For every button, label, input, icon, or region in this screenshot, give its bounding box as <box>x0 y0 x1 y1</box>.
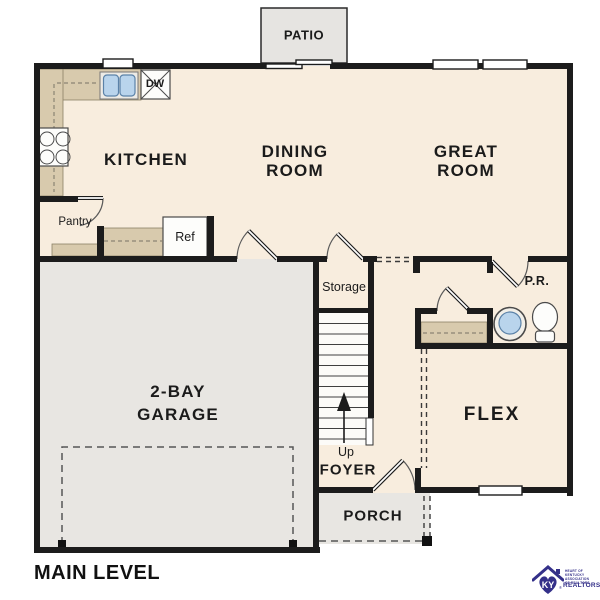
ky-house-icon: KY <box>532 563 564 597</box>
refrigerator-label: Ref <box>175 230 194 244</box>
porch-label: PORCH <box>343 508 402 525</box>
great-room-label-2: ROOM <box>437 161 495 181</box>
floor-plan-drawing <box>0 0 600 600</box>
garage-label: 2-BAY <box>150 382 205 402</box>
foyer-label: FOYER <box>320 462 377 479</box>
brand-logo: KY HEART OF KENTUCKY ASSOCIATION OF REAL… <box>532 563 598 599</box>
toilet <box>533 303 558 332</box>
kitchen-label: KITCHEN <box>104 150 188 170</box>
staircase <box>319 313 373 445</box>
storage-label: Storage <box>322 280 366 294</box>
stairs-up-label: Up <box>338 445 354 459</box>
dining-room-label-2: ROOM <box>266 161 324 181</box>
great-room-label: GREAT <box>434 142 498 162</box>
garage-label-2: GARAGE <box>137 405 219 425</box>
page-title: MAIN LEVEL <box>34 562 160 585</box>
floor-plan: PATIO KITCHEN DINING ROOM GREAT ROOM 2-B… <box>0 0 600 600</box>
logo-registered-mark: ® <box>559 585 562 590</box>
dishwasher-label: DW <box>146 78 164 90</box>
powder-room-label: P.R. <box>525 274 550 288</box>
patio-label: PATIO <box>284 28 324 43</box>
dining-room-label: DINING <box>262 142 329 162</box>
logo-realtors-text: REALTORS <box>563 582 600 589</box>
flex-room-label: FLEX <box>464 404 521 426</box>
logo-monogram: KY <box>542 580 555 590</box>
pantry-label: Pantry <box>58 216 91 228</box>
